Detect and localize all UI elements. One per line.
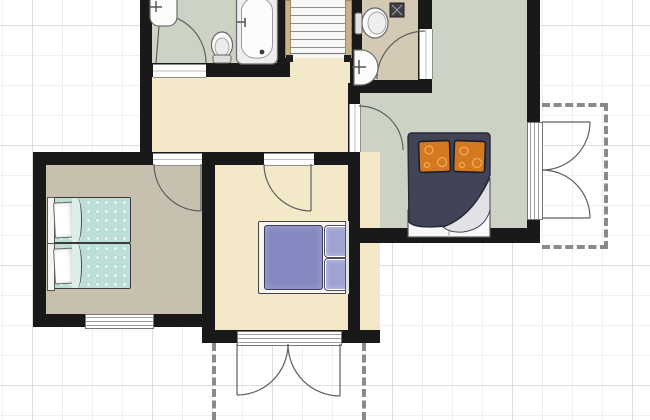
double-bed-right[interactable] bbox=[408, 133, 490, 237]
wc-fixtures bbox=[352, 3, 404, 85]
balcony-bottom-door-arc-left bbox=[237, 344, 288, 395]
balcony-right-door-arc-bottom bbox=[542, 170, 590, 218]
wc-door-arc bbox=[377, 31, 425, 79]
bathtub-drain-icon bbox=[260, 50, 265, 55]
bedroom-right-door-arc bbox=[359, 106, 403, 150]
bedroom-middle-door-arc bbox=[264, 164, 311, 211]
balcony-right-door-arc-top bbox=[542, 122, 590, 170]
orange-pillow-2 bbox=[453, 140, 485, 172]
bathroom-toilet-tank bbox=[213, 55, 231, 63]
bedroom-left-door-arc bbox=[154, 164, 201, 211]
vector-overlay bbox=[0, 0, 650, 420]
wc-toilet-tank bbox=[355, 13, 362, 34]
bathroom-sink[interactable] bbox=[150, 0, 177, 26]
bathtub-basin bbox=[242, 0, 273, 58]
wc-toilet-seat bbox=[368, 12, 386, 34]
balcony-bottom-door-arc-right bbox=[288, 344, 340, 396]
orange-pillow-1 bbox=[418, 140, 450, 172]
bathroom-toilet-seat bbox=[215, 38, 229, 56]
floor-plan-canvas bbox=[0, 0, 650, 420]
bathroom-fixtures bbox=[149, 0, 278, 64]
